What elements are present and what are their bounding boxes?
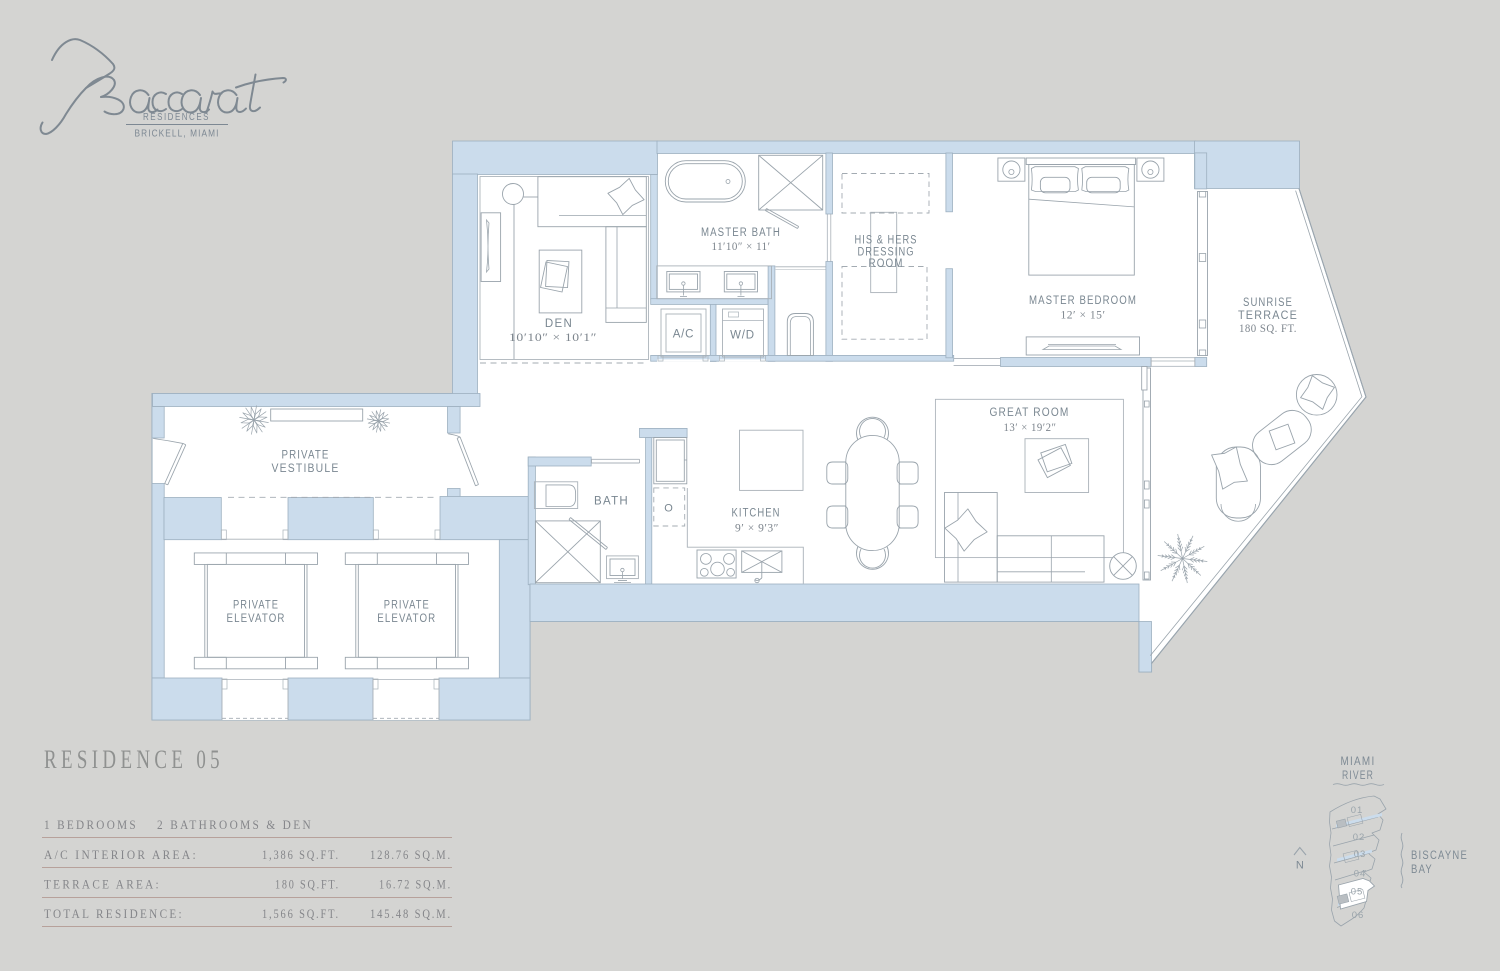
svg-text:9′ × 9′3″: 9′ × 9′3″ <box>735 523 779 535</box>
svg-text:2 BATHROOMS & DEN: 2 BATHROOMS & DEN <box>157 818 313 832</box>
svg-text:11′10″ × 11′: 11′10″ × 11′ <box>712 241 771 253</box>
svg-text:W/D: W/D <box>730 330 755 342</box>
svg-text:10′10″ × 10′1″: 10′10″ × 10′1″ <box>509 332 597 344</box>
svg-text:TERRACE: TERRACE <box>1238 310 1298 322</box>
svg-text:180 SQ. FT.: 180 SQ. FT. <box>1239 323 1297 335</box>
svg-text:A/C INTERIOR AREA:: A/C INTERIOR AREA: <box>44 848 198 862</box>
svg-text:HIS & HERS: HIS & HERS <box>855 235 918 247</box>
svg-text:1,566 SQ.FT.: 1,566 SQ.FT. <box>262 907 340 921</box>
svg-text:16.72 SQ.M.: 16.72 SQ.M. <box>379 878 452 892</box>
svg-text:MIAMI: MIAMI <box>1341 756 1376 768</box>
svg-text:TOTAL RESIDENCE:: TOTAL RESIDENCE: <box>44 907 184 921</box>
svg-text:PRIVATE: PRIVATE <box>233 600 279 612</box>
svg-text:VESTIBULE: VESTIBULE <box>272 463 340 475</box>
svg-text:12′ × 15′: 12′ × 15′ <box>1061 310 1106 322</box>
svg-text:RIVER: RIVER <box>1342 770 1374 782</box>
svg-text:RESIDENCE 05: RESIDENCE 05 <box>44 745 224 774</box>
svg-text:BRICKELL, MIAMI: BRICKELL, MIAMI <box>135 128 220 140</box>
svg-text:01: 01 <box>1351 805 1364 816</box>
svg-text:02: 02 <box>1353 832 1366 843</box>
svg-text:SUNRISE: SUNRISE <box>1243 297 1293 309</box>
svg-text:13′ × 19′2″: 13′ × 19′2″ <box>1004 422 1057 434</box>
svg-text:RESIDENCES: RESIDENCES <box>143 111 210 123</box>
svg-text:MASTER BEDROOM: MASTER BEDROOM <box>1029 295 1137 307</box>
svg-text:KITCHEN: KITCHEN <box>732 508 781 520</box>
svg-text:03: 03 <box>1354 849 1367 860</box>
svg-text:DRESSING: DRESSING <box>858 247 915 259</box>
svg-text:1 BEDROOMS: 1 BEDROOMS <box>44 818 138 832</box>
svg-text:04: 04 <box>1354 869 1367 880</box>
svg-text:PRIVATE: PRIVATE <box>282 450 330 462</box>
svg-text:BISCAYNE: BISCAYNE <box>1411 850 1468 862</box>
svg-text:1,386 SQ.FT.: 1,386 SQ.FT. <box>262 848 340 862</box>
svg-text:05: 05 <box>1351 887 1364 898</box>
svg-text:180 SQ.FT.: 180 SQ.FT. <box>275 878 340 892</box>
svg-text:TERRACE AREA:: TERRACE AREA: <box>44 878 161 892</box>
svg-text:N: N <box>1296 860 1304 872</box>
svg-text:145.48 SQ.M.: 145.48 SQ.M. <box>370 907 452 921</box>
svg-text:PRIVATE: PRIVATE <box>384 600 430 612</box>
svg-text:A/C: A/C <box>673 329 695 341</box>
svg-text:BAY: BAY <box>1411 864 1433 876</box>
svg-text:BATH: BATH <box>594 496 629 508</box>
svg-text:GREAT ROOM: GREAT ROOM <box>990 407 1070 419</box>
svg-text:ELEVATOR: ELEVATOR <box>227 613 286 625</box>
svg-text:DEN: DEN <box>545 318 573 330</box>
svg-text:MASTER BATH: MASTER BATH <box>701 227 781 239</box>
svg-text:ELEVATOR: ELEVATOR <box>377 613 436 625</box>
svg-text:06: 06 <box>1352 910 1365 921</box>
svg-text:O: O <box>664 503 673 515</box>
svg-text:128.76 SQ.M.: 128.76 SQ.M. <box>370 848 452 862</box>
svg-text:ROOM: ROOM <box>869 258 904 270</box>
